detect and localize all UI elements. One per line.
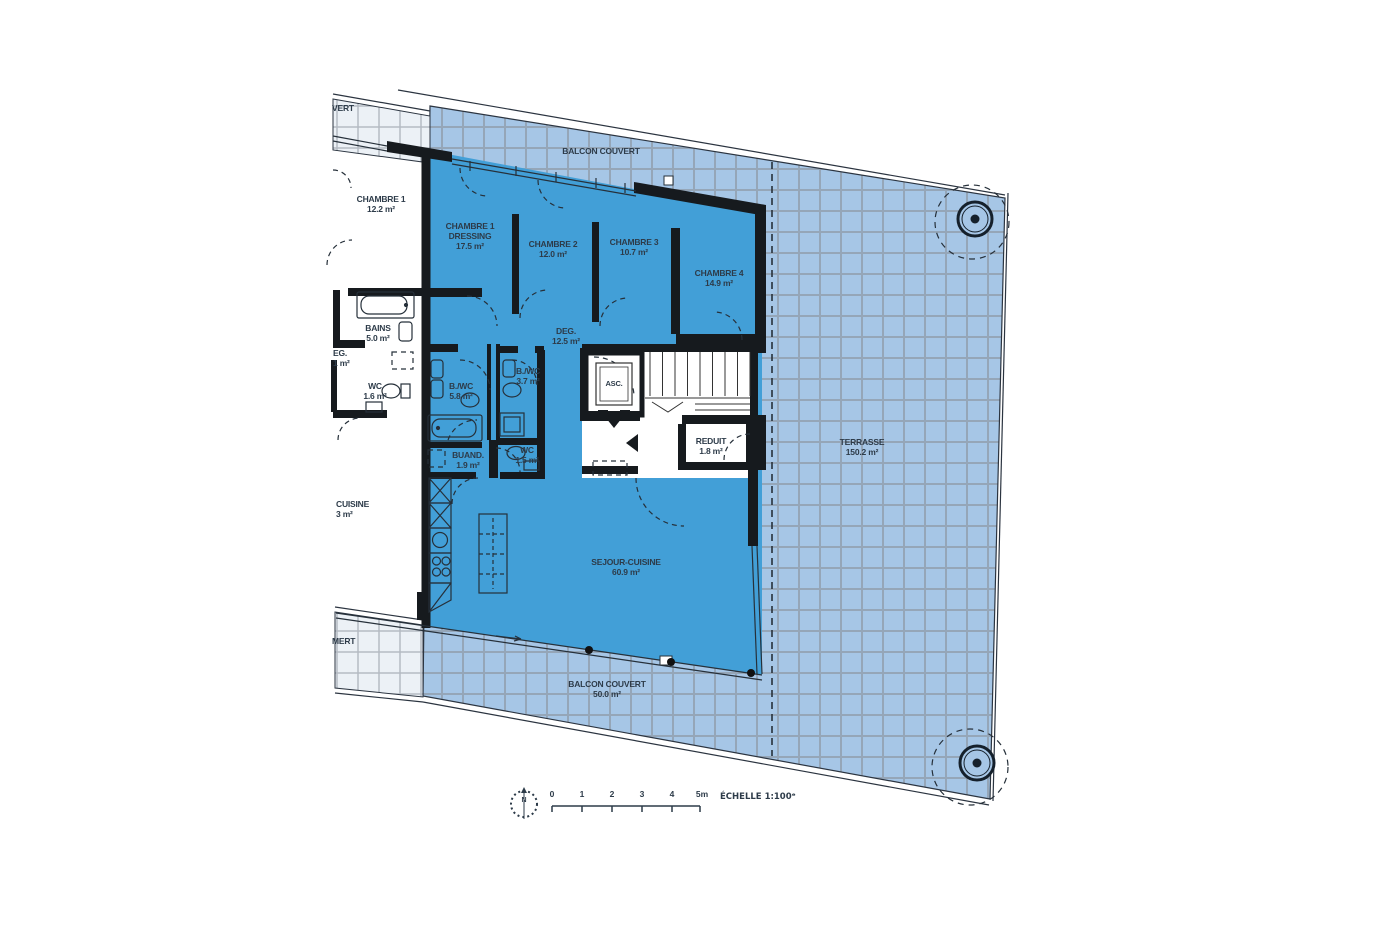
- room-area: 1.5 m²: [515, 455, 538, 465]
- room-area: 1 m²: [333, 358, 350, 368]
- label-balcon-couvert-bottom: BALCON COUVERT 50.0 m²: [568, 679, 645, 699]
- label-wc-15: WC 1.5 m²: [515, 445, 538, 465]
- compass-north-label: N: [521, 797, 526, 804]
- room-name: ASC.: [605, 379, 622, 389]
- room-name-2: DRESSING: [446, 231, 495, 241]
- scale-tick-2: 2: [610, 789, 615, 799]
- room-name: B./WC: [516, 366, 540, 376]
- room-name: CHAMBRE 1: [446, 221, 495, 231]
- label-terrasse: TERRASSE 150.2 m²: [840, 437, 885, 457]
- room-name: CUISINE: [336, 499, 369, 509]
- room-name: B./WC: [449, 381, 473, 391]
- room-area: 12.5 m²: [552, 336, 580, 346]
- room-area: 12.2 m²: [357, 204, 406, 214]
- label-cuisine-voisin: CUISINE 3 m²: [336, 499, 369, 519]
- sink-icon: [399, 322, 412, 341]
- label-neighbor-balcony-bottom: MERT: [332, 636, 355, 646]
- label-deg-voisin: EG. 1 m²: [333, 348, 350, 368]
- room-area: 1.9 m²: [452, 460, 484, 470]
- label-neighbor-balcony-top: VERT: [332, 103, 354, 113]
- room-name: REDUIT: [696, 436, 726, 446]
- room-area: 3.7 m²: [516, 376, 540, 386]
- floor-plan-drawing: [0, 0, 1374, 943]
- scale-tick-4: 4: [670, 789, 675, 799]
- room-area: 1.6 m²: [363, 391, 386, 401]
- label-chambre4: CHAMBRE 4 14.9 m²: [695, 268, 744, 288]
- room-area: 5.8 m²: [449, 391, 473, 401]
- room-area: 14.9 m²: [695, 278, 744, 288]
- room-name: CHAMBRE 2: [529, 239, 578, 249]
- label-chambre1-voisin: CHAMBRE 1 12.2 m²: [357, 194, 406, 214]
- room-area: 17.5 m²: [446, 241, 495, 251]
- label-buand: BUAND. 1.9 m²: [452, 450, 484, 470]
- room-name: SEJOUR-CUISINE: [591, 557, 660, 567]
- label-bwc-37: B./WC 3.7 m²: [516, 366, 540, 386]
- scale-ruler: [552, 806, 700, 812]
- label-balcon-couvert-top: BALCON COUVERT: [562, 146, 639, 156]
- room-area: 1.8 m²: [696, 446, 726, 456]
- room-area: 5.0 m²: [365, 333, 390, 343]
- label-reduit: REDUIT 1.8 m²: [696, 436, 726, 456]
- floor-plan-page: BALCON COUVERT VERT CHAMBRE 1 12.2 m² CH…: [0, 0, 1374, 943]
- scale-tick-5m: 5m: [696, 789, 708, 799]
- room-area: 10.7 m²: [610, 247, 659, 257]
- scale-tick-3: 3: [640, 789, 645, 799]
- room-area: 12.0 m²: [529, 249, 578, 259]
- label-chambre2: CHAMBRE 2 12.0 m²: [529, 239, 578, 259]
- scale-ratio-label: ÉCHELLE 1:100ᵉ: [720, 792, 796, 802]
- area-size: 50.0 m²: [568, 689, 645, 699]
- scale-tick-1: 1: [580, 789, 585, 799]
- area-name: TERRASSE: [840, 437, 885, 447]
- room-name: EG.: [333, 348, 350, 358]
- room-name: WC: [363, 381, 386, 391]
- room-area: 60.9 m²: [591, 567, 660, 577]
- scale-tick-0: 0: [550, 789, 555, 799]
- area-name: BALCON COUVERT: [562, 146, 639, 156]
- room-name: CHAMBRE 1: [357, 194, 406, 204]
- area-size: 150.2 m²: [840, 447, 885, 457]
- label-sejour-cuisine: SEJOUR-CUISINE 60.9 m²: [591, 557, 660, 577]
- label-bains: BAINS 5.0 m²: [365, 323, 390, 343]
- label-deg: DEG. 12.5 m²: [552, 326, 580, 346]
- label-chambre1-dressing: CHAMBRE 1 DRESSING 17.5 m²: [446, 221, 495, 251]
- room-name: BUAND.: [452, 450, 484, 460]
- room-name: CHAMBRE 3: [610, 237, 659, 247]
- label-bwc-58: B./WC 5.8 m²: [449, 381, 473, 401]
- room-area: 3 m²: [336, 509, 369, 519]
- room-name: WC: [515, 445, 538, 455]
- label-chambre3: CHAMBRE 3 10.7 m²: [610, 237, 659, 257]
- area-name: BALCON COUVERT: [568, 679, 645, 689]
- area-name: MERT: [332, 636, 355, 646]
- room-name: CHAMBRE 4: [695, 268, 744, 278]
- room-name: BAINS: [365, 323, 390, 333]
- area-name: VERT: [332, 103, 354, 113]
- label-asc: ASC.: [605, 379, 622, 389]
- room-name: DEG.: [552, 326, 580, 336]
- label-wc-voisin: WC 1.6 m²: [363, 381, 386, 401]
